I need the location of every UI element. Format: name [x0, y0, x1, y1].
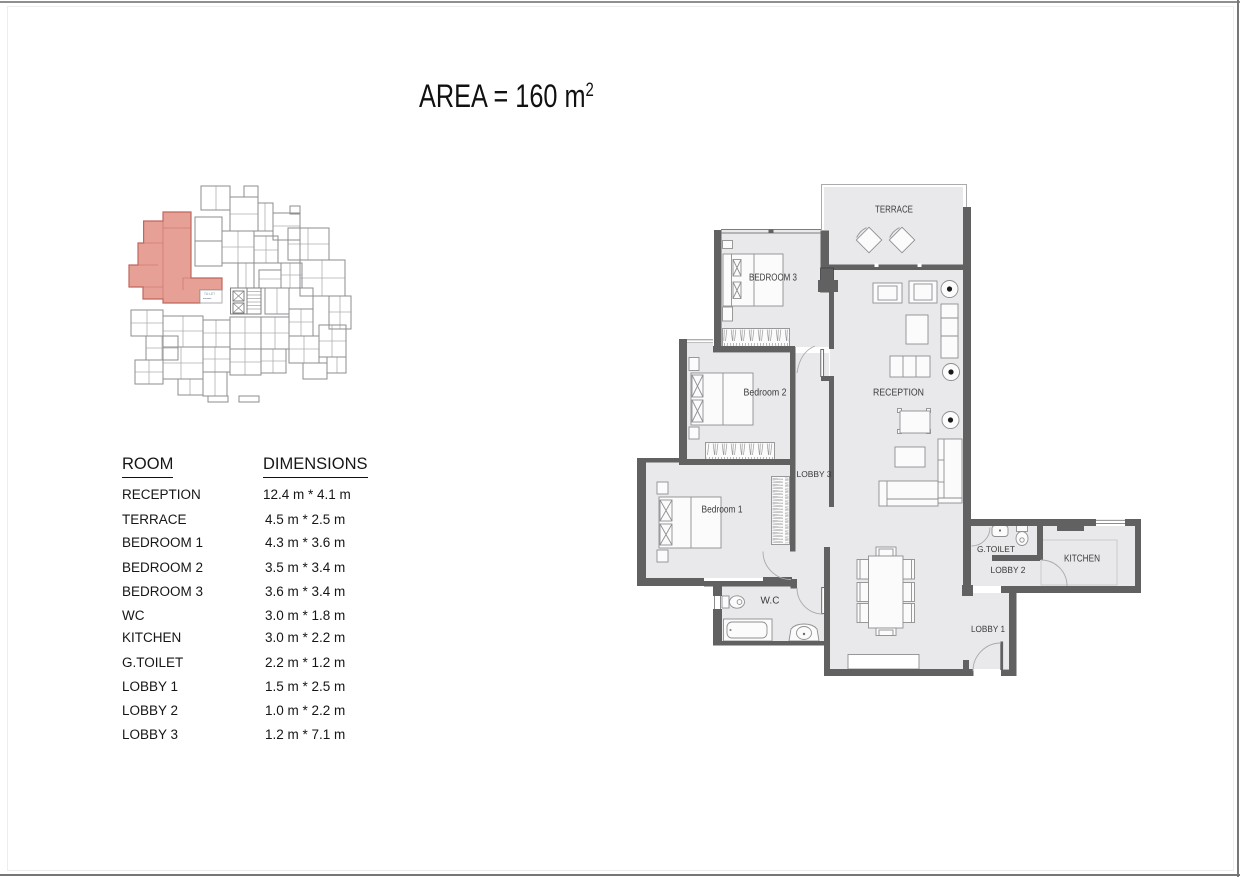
svg-text:LOBBY 3: LOBBY 3 — [797, 469, 832, 479]
svg-text:TERRACE: TERRACE — [875, 205, 913, 216]
svg-text:Bedroom 2: Bedroom 2 — [744, 388, 787, 399]
svg-text:LOBBY 1: LOBBY 1 — [971, 624, 1005, 634]
svg-text:BEDROOM 3: BEDROOM 3 — [749, 273, 797, 284]
svg-text:W.C: W.C — [761, 596, 780, 607]
svg-text:KITCHEN: KITCHEN — [1064, 554, 1100, 565]
svg-text:RECEPTION: RECEPTION — [873, 388, 924, 399]
svg-text:G.TOILET: G.TOILET — [977, 544, 1015, 554]
svg-text:LOBBY 2: LOBBY 2 — [991, 565, 1026, 575]
svg-text:Bedroom 1: Bedroom 1 — [702, 505, 743, 516]
